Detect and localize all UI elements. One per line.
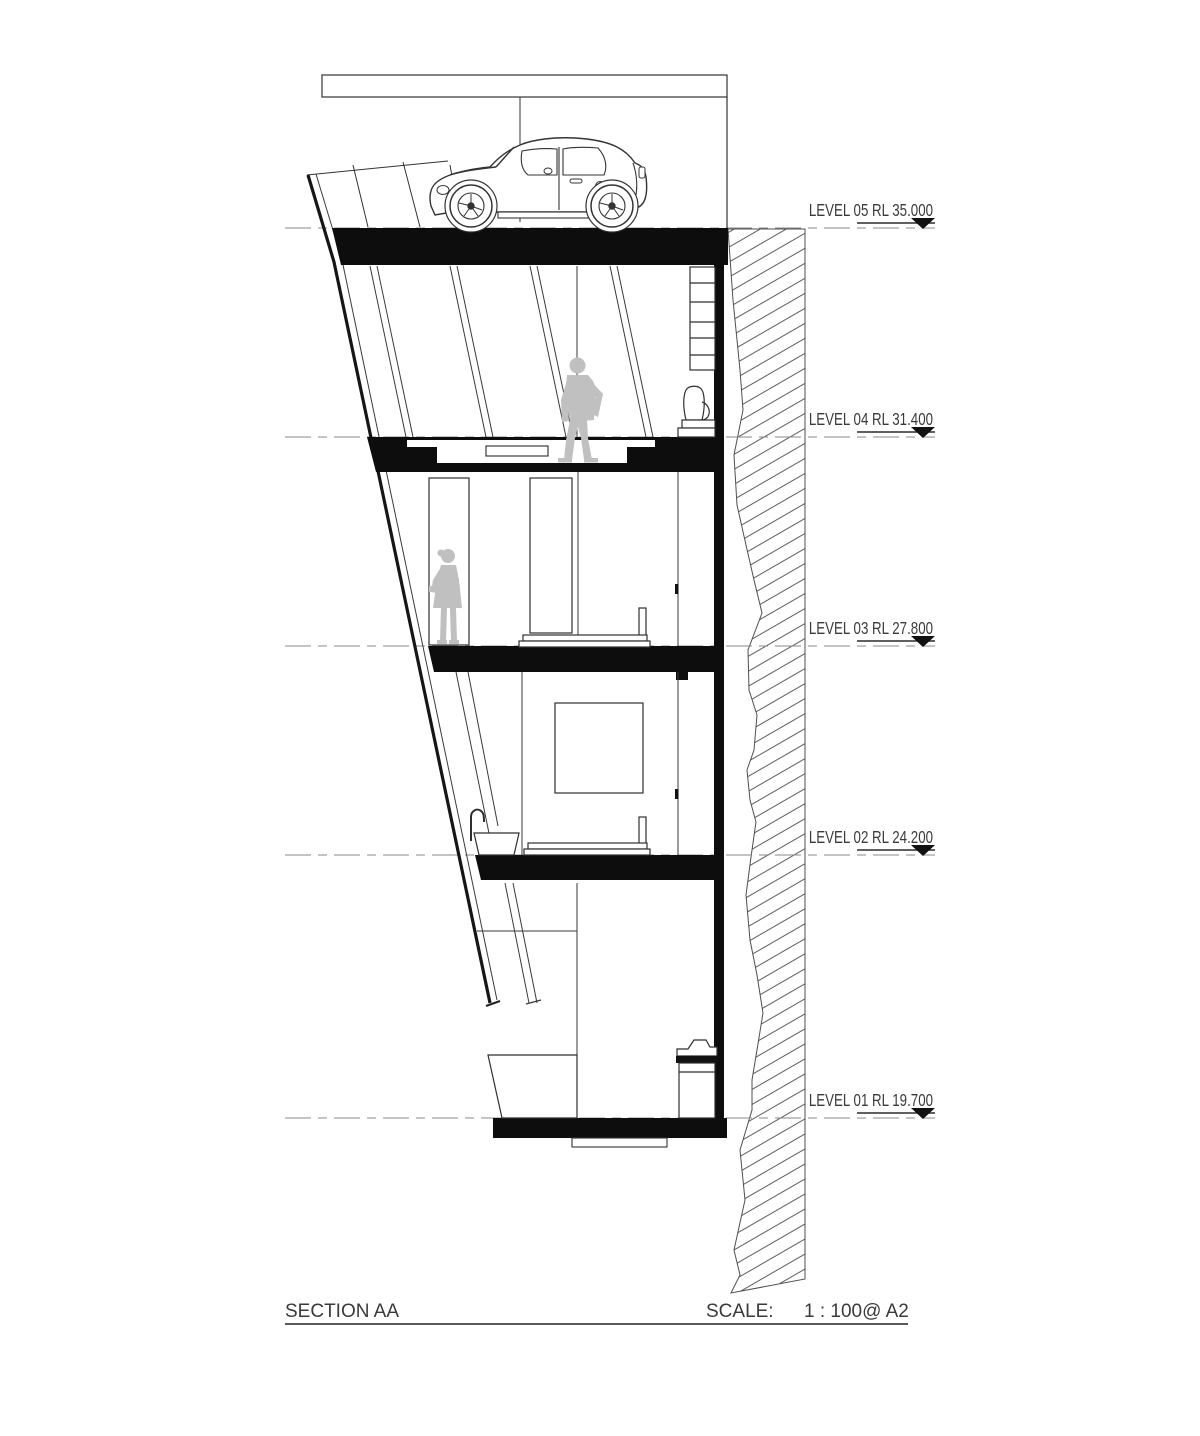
- toilet-fixture: [678, 386, 715, 437]
- car-window-rear: [563, 147, 606, 175]
- facade-end-cap: [486, 1001, 500, 1006]
- level-02-bed: [524, 817, 650, 855]
- rock-hatch: [728, 229, 805, 1293]
- car-sill: [498, 212, 594, 218]
- level-04-label: LEVEL 04 RL 31.400: [809, 410, 933, 429]
- level-02-wall-panel: [555, 703, 643, 793]
- car: [430, 138, 647, 232]
- slab-level-05: [332, 228, 728, 265]
- shelf-ladder: [690, 267, 715, 370]
- facade-ridge-line: [307, 161, 448, 175]
- floor-level-02: [475, 855, 724, 880]
- level-03-door-handle: [675, 584, 679, 594]
- section-drawing-sheet: LEVEL 05 RL 35.000 LEVEL 04 RL 31.400 LE…: [0, 0, 1200, 1436]
- car-taillight: [639, 167, 645, 178]
- slab-level-01: [493, 1118, 727, 1138]
- level-03-wardrobe: [530, 478, 572, 633]
- level-markers: LEVEL 05 RL 35.000 LEVEL 04 RL 31.400 LE…: [809, 201, 935, 1119]
- car-door-handle: [570, 179, 582, 183]
- basin-and-tap: [471, 810, 519, 855]
- scale-label: SCALE:: [706, 1301, 774, 1322]
- deck-mullion-1: [353, 165, 368, 227]
- scale-value: 1 : 100@ A2: [804, 1301, 909, 1322]
- building-structure: [307, 75, 728, 1147]
- level-marker-05: LEVEL 05 RL 35.000: [809, 201, 935, 229]
- level-datum-lines: [285, 228, 935, 1118]
- car-front-wheel: [445, 180, 497, 232]
- car-rear-wheel: [586, 180, 638, 232]
- level-marker-03: LEVEL 03 RL 27.800: [809, 619, 935, 647]
- floor-level-03: [428, 646, 724, 680]
- level-marker-04: LEVEL 04 RL 31.400: [809, 410, 935, 438]
- sunken-floor-detail: [486, 446, 548, 456]
- level-04-glazing: [370, 266, 653, 437]
- level-marker-01: LEVEL 01 RL 19.700: [809, 1091, 935, 1119]
- level-01-label: LEVEL 01 RL 19.700: [809, 1091, 933, 1110]
- level-02-label: LEVEL 02 RL 24.200: [809, 828, 933, 847]
- footing: [572, 1138, 667, 1147]
- east-wall: [714, 265, 724, 1138]
- drawing-title: SECTION AA: [285, 1301, 399, 1322]
- deck-mullion-2: [403, 162, 420, 227]
- level-02-door-handle: [675, 789, 679, 799]
- car-mirror: [544, 168, 552, 174]
- floor-level-04: [367, 437, 716, 472]
- level-marker-02: LEVEL 02 RL 24.200: [809, 828, 935, 856]
- level-01-bench: [488, 1055, 577, 1118]
- level-05-label: LEVEL 05 RL 35.000: [809, 201, 933, 220]
- roof-parapet-band: [322, 75, 727, 97]
- section-drawing: LEVEL 05 RL 35.000 LEVEL 04 RL 31.400 LE…: [0, 0, 1200, 1436]
- car-headlight: [437, 186, 449, 195]
- level-03-label: LEVEL 03 RL 27.800: [809, 619, 933, 638]
- stove: [676, 1040, 718, 1118]
- title-block: SECTION AA SCALE: 1 : 100@ A2: [285, 1301, 909, 1324]
